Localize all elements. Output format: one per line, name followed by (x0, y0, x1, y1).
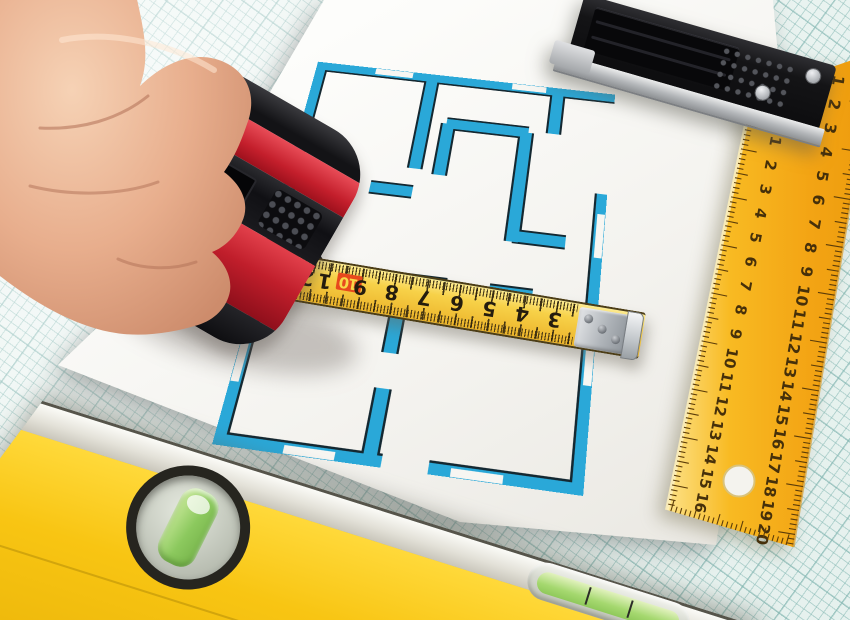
ruler-number: 10 (791, 283, 813, 308)
plan-wall (513, 236, 566, 242)
scene: 0123456789101112131415161234567891011121… (0, 0, 850, 620)
ruler-number: 12 (784, 331, 805, 355)
hand-silhouette (0, 0, 251, 335)
ruler-hanging-hole (724, 466, 755, 497)
plan-wall (489, 291, 532, 296)
plan-wall (512, 133, 527, 242)
plan-wall (446, 123, 528, 132)
ruler-number: 15 (772, 403, 793, 427)
ruler-number: 17 (764, 450, 785, 474)
hand (0, 0, 420, 420)
ruler-number: 11 (788, 307, 809, 331)
try-square-blade: 0123456789101112131415161234567891011121… (600, 0, 850, 620)
ruler-number: 19 (756, 498, 777, 522)
ruler-number: 18 (760, 474, 781, 498)
ruler-number: 14 (776, 379, 798, 404)
ruler-number: 16 (768, 426, 789, 450)
ruler-number: 20 (752, 522, 774, 547)
ruler-number: 13 (780, 355, 801, 379)
plan-wall (553, 92, 558, 134)
